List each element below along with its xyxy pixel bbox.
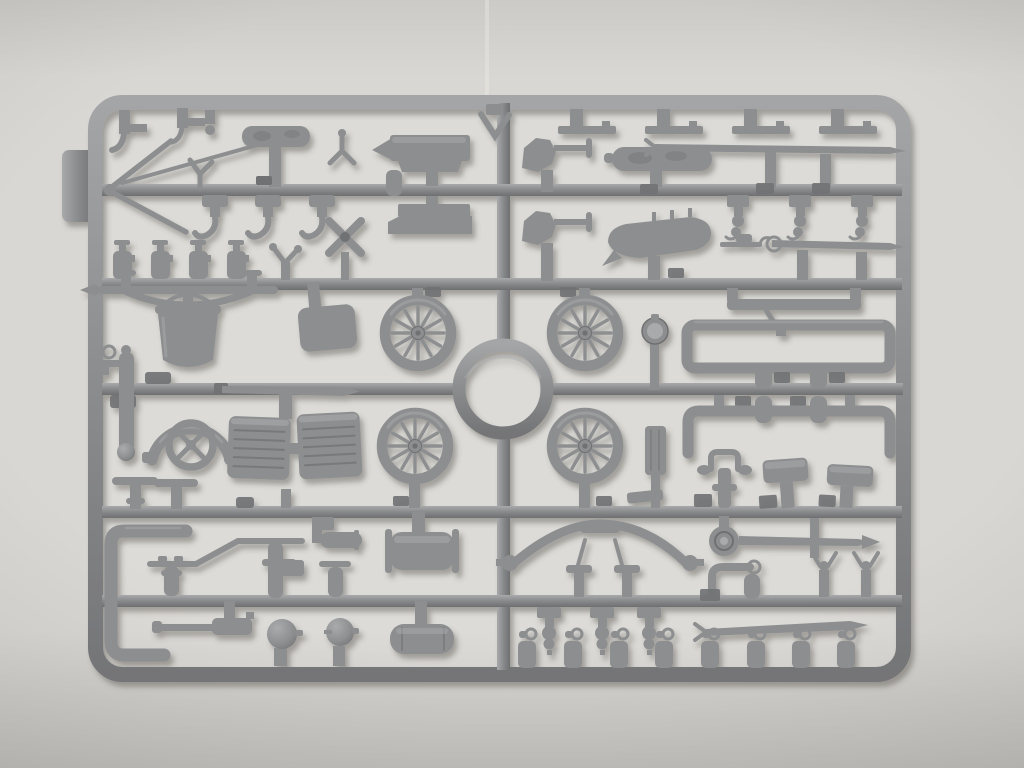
sprue-photo-canvas bbox=[0, 0, 1024, 768]
photo-of-model-kit-sprue bbox=[0, 0, 1024, 768]
backdrop-seam bbox=[485, 0, 489, 96]
bucket-part bbox=[155, 295, 221, 368]
